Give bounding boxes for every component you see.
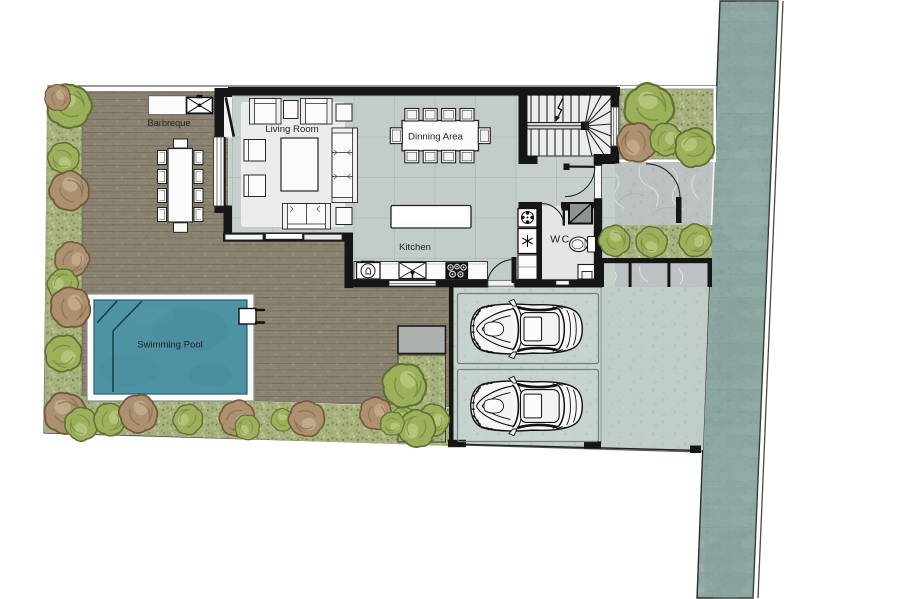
svg-text:Kitchen: Kitchen bbox=[399, 242, 431, 253]
svg-text:WC: WC bbox=[550, 234, 571, 246]
svg-text:Swimming Pool: Swimming Pool bbox=[137, 340, 202, 351]
svg-text:Living Room: Living Room bbox=[265, 124, 318, 135]
svg-text:Barbreque: Barbreque bbox=[148, 118, 191, 128]
svg-text:Dinning Area: Dinning Area bbox=[408, 132, 464, 143]
